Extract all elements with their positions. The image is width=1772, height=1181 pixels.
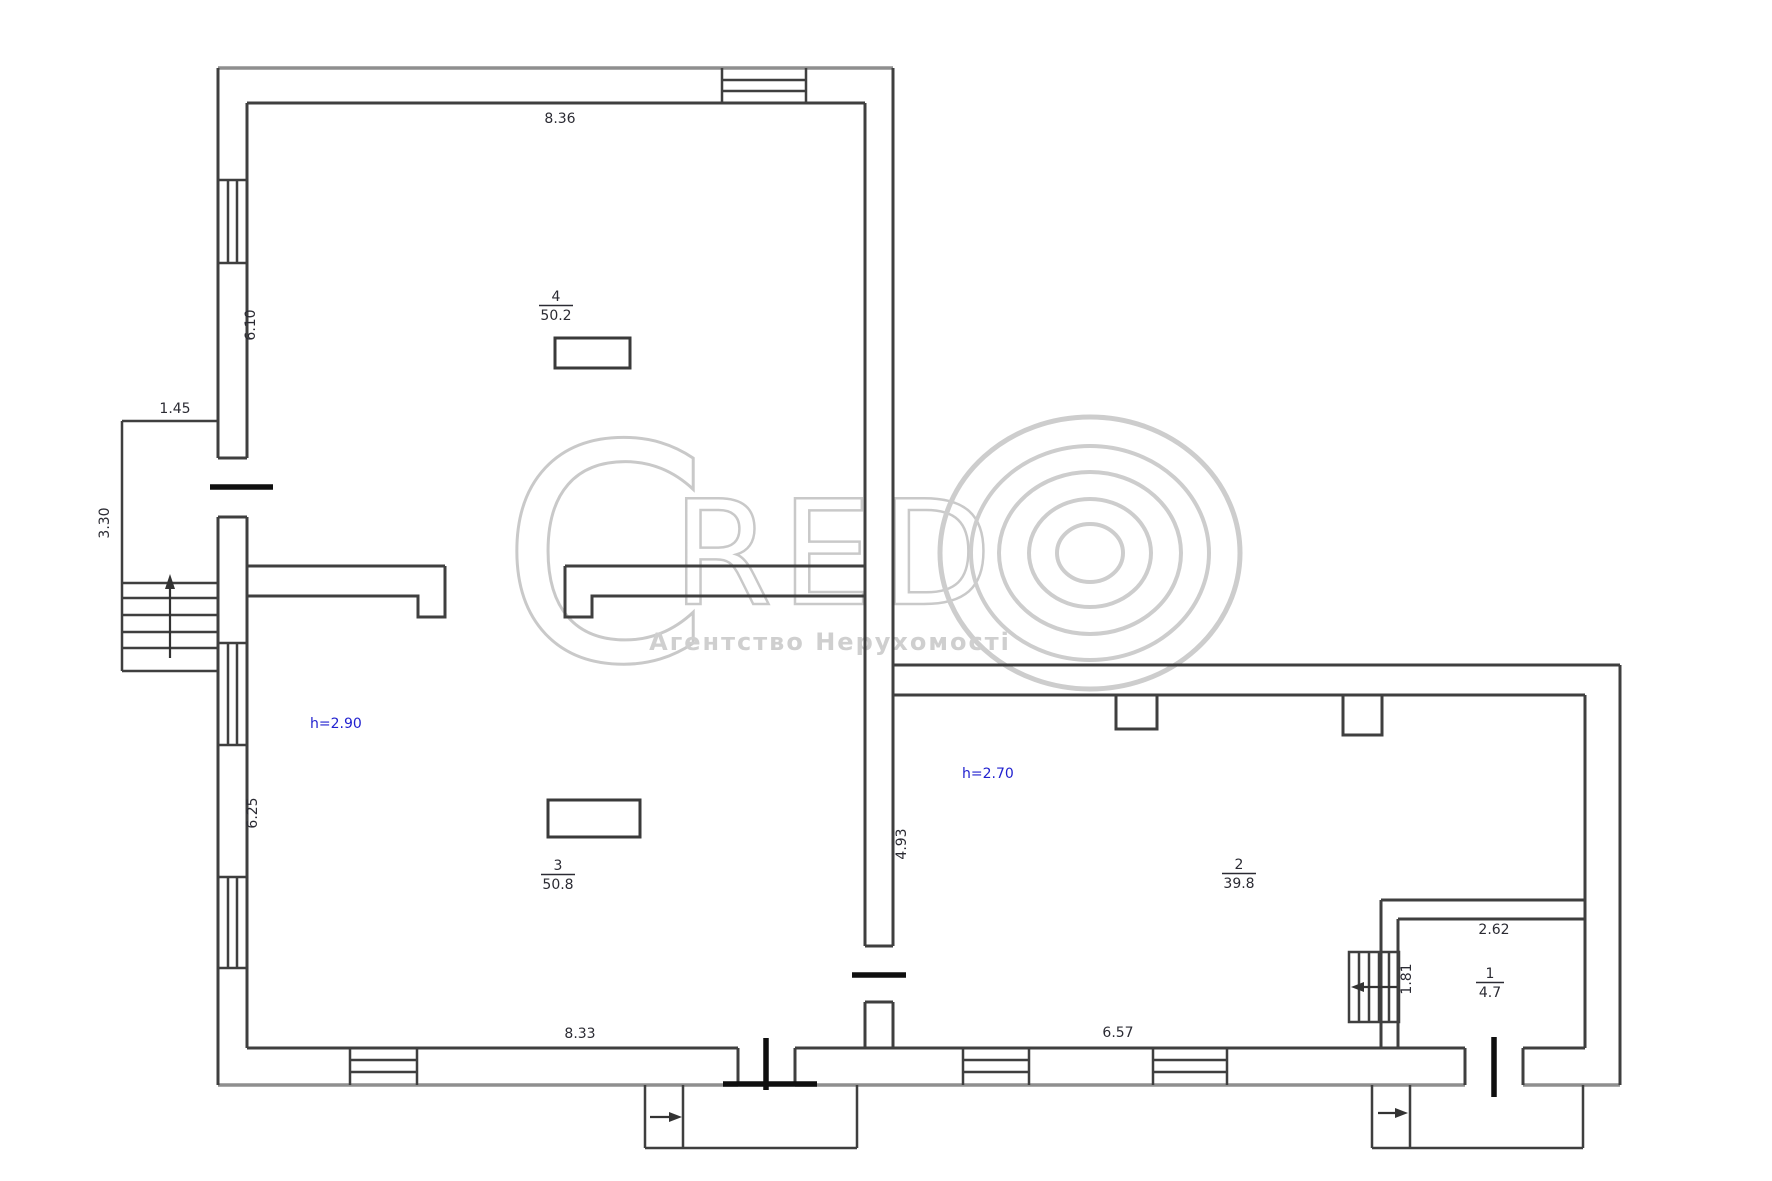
room-label-3: 3 50.8 — [541, 858, 575, 893]
dim-room4-depth: 6.10 — [243, 309, 259, 340]
bottom-right-porch — [1372, 1085, 1583, 1148]
floor-plan: C RED Агентство Нерухомості — [0, 0, 1772, 1181]
furniture-room4 — [555, 338, 630, 368]
room4-number: 4 — [552, 289, 561, 305]
dim-room4-width: 8.36 — [544, 111, 575, 127]
dim-room1-depth: 1.81 — [1399, 963, 1415, 994]
dim-room3-width: 8.33 — [564, 1026, 595, 1042]
window-bottom-room3 — [350, 1048, 417, 1085]
room4-area: 50.2 — [540, 308, 571, 324]
window-bottom-room2-right — [1153, 1048, 1227, 1085]
arrow-right-middle-porch-icon — [650, 1112, 682, 1122]
dim-room1-width: 2.62 — [1478, 922, 1509, 938]
watermark-tagline: Агентство Нерухомості — [649, 628, 1011, 656]
window-top-room4 — [722, 68, 806, 103]
window-left-room4 — [218, 180, 247, 263]
room2-area: 39.8 — [1223, 876, 1254, 892]
room2-number: 2 — [1235, 857, 1244, 873]
furniture-room3 — [548, 800, 640, 837]
dim-room2-width: 6.57 — [1102, 1025, 1133, 1041]
watermark-letters-red: RED — [672, 470, 1000, 639]
dim-room3-depth: 6.25 — [245, 797, 261, 828]
room3-number: 3 — [554, 858, 563, 874]
room1-area: 4.7 — [1479, 985, 1501, 1001]
room1-number: 1 — [1486, 966, 1495, 982]
height-note-room3: h=2.90 — [310, 716, 362, 732]
floor-plan-svg: C RED Агентство Нерухомості — [0, 0, 1772, 1181]
height-note-room2: h=2.70 — [962, 766, 1014, 782]
room-label-2: 2 39.8 — [1222, 857, 1256, 892]
dim-porch-width: 1.45 — [159, 401, 190, 417]
window-left-room3-upper — [218, 643, 247, 745]
direction-arrows — [165, 574, 1408, 1122]
room-label-1: 1 4.7 — [1476, 966, 1504, 1001]
dim-room2-depth: 4.93 — [894, 828, 910, 859]
room-label-4: 4 50.2 — [539, 289, 573, 324]
window-bottom-room2-left — [963, 1048, 1029, 1085]
arrow-right-right-porch-icon — [1378, 1108, 1408, 1118]
credo-watermark: C RED Агентство Нерухомості — [500, 382, 1240, 731]
window-left-room3-lower — [218, 877, 247, 968]
room3-area: 50.8 — [542, 877, 573, 893]
dim-porch-depth: 3.30 — [97, 507, 113, 538]
